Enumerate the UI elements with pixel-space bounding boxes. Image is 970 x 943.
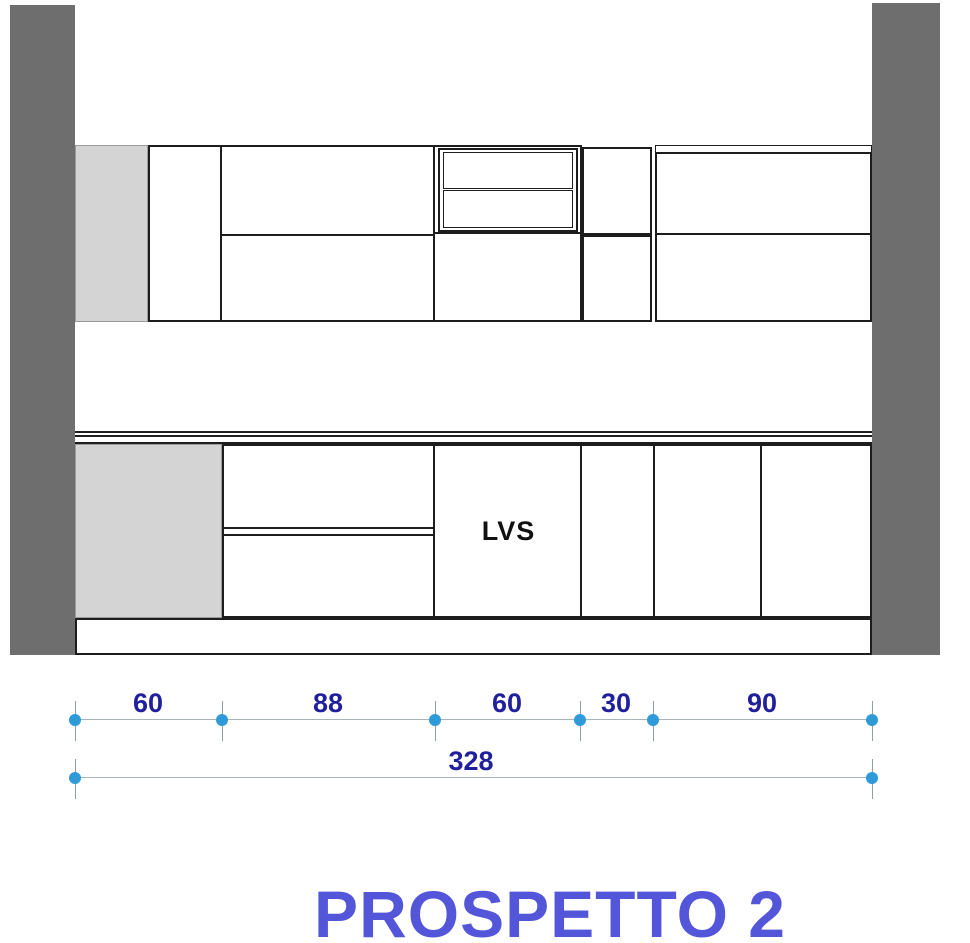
marker-dot-icon (69, 714, 81, 726)
dimension-line-segments (75, 719, 872, 720)
dimension-value: 60 (133, 688, 163, 719)
dishwasher-label: LVS (435, 444, 582, 618)
upper-filler-panel (75, 145, 148, 322)
base-cabinet-narrow (580, 444, 655, 618)
base-cabinet-right-door-right (760, 444, 872, 618)
drawing-title: PROSPETTO 2 (314, 876, 786, 943)
upper-flap-door-top (443, 152, 573, 189)
upper-flap-door-bottom (443, 190, 573, 228)
marker-dot-icon (647, 714, 659, 726)
wall-left (10, 5, 75, 655)
countertop (75, 431, 872, 444)
dimension-value: 90 (747, 688, 777, 719)
upper-cabinet-wide-door-top (220, 145, 435, 236)
upper-right-door-top (655, 152, 872, 235)
marker-dot-icon (866, 714, 878, 726)
plinth (75, 618, 872, 655)
upper-cabinet-tall-door (148, 145, 222, 322)
dimension-value: 60 (492, 688, 522, 719)
wall-right (872, 3, 940, 655)
marker-dot-icon (866, 772, 878, 784)
dimension-value: 88 (313, 688, 343, 719)
marker-dot-icon (216, 714, 228, 726)
base-filler-panel (75, 444, 222, 618)
upper-narrow-box-bottom (582, 235, 652, 322)
elevation-drawing: LVS 60 88 60 30 90 328 PROSPETTO 2 (0, 0, 970, 943)
base-cabinet-right-door-left (653, 444, 762, 618)
dimension-line-total (75, 777, 872, 778)
marker-dot-icon (429, 714, 441, 726)
drawer-line-upper (224, 527, 433, 529)
drawer-line-lower (224, 534, 433, 536)
marker-dot-icon (69, 772, 81, 784)
marker-dot-icon (574, 714, 586, 726)
upper-narrow-box-top (582, 147, 652, 235)
upper-cabinet-wide-door-bottom (220, 234, 435, 322)
upper-right-door-bottom (655, 233, 872, 322)
upper-door-under-flap (433, 232, 582, 322)
dimension-total-value: 328 (448, 746, 493, 777)
dimension-value: 30 (601, 688, 631, 719)
base-cabinet-drawer-unit (222, 444, 435, 618)
